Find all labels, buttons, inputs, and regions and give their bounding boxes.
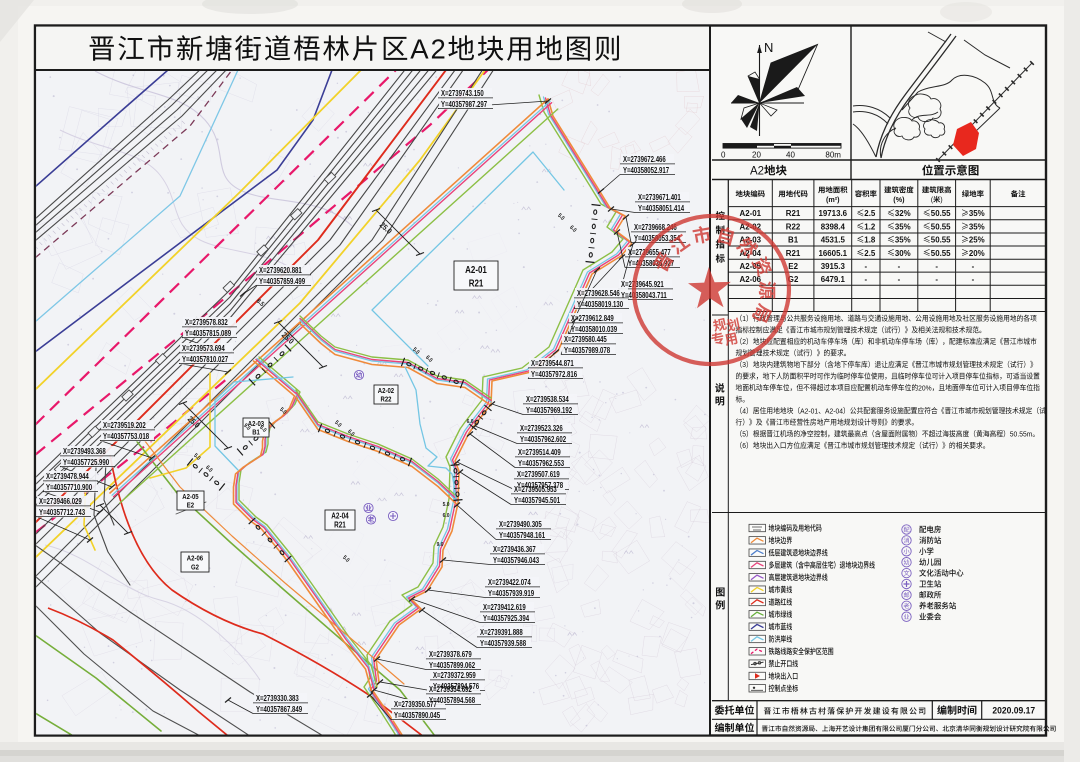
- svg-text:X=2739645.921: X=2739645.921: [621, 279, 664, 289]
- svg-text:X=2739620.881: X=2739620.881: [259, 265, 302, 275]
- svg-text:G2: G2: [191, 564, 199, 572]
- svg-text:50.55: 50.55: [931, 249, 951, 258]
- svg-text:9.0: 9.0: [437, 542, 444, 548]
- svg-text:3: 3: [742, 360, 746, 370]
- svg-text:E2: E2: [788, 262, 798, 271]
- svg-text:X=2739672.466: X=2739672.466: [623, 154, 666, 164]
- svg-text:2: 2: [742, 337, 746, 347]
- svg-text:4531.5: 4531.5: [821, 235, 846, 244]
- svg-text:Y=40357946.043: Y=40357946.043: [493, 555, 539, 565]
- svg-text:R21: R21: [334, 520, 346, 530]
- svg-text:X=2739478.944: X=2739478.944: [46, 471, 90, 481]
- svg-text:R21: R21: [786, 249, 801, 258]
- svg-text:R22: R22: [786, 222, 801, 231]
- svg-text:35%: 35%: [895, 222, 911, 231]
- svg-text:1.8: 1.8: [864, 235, 875, 244]
- svg-text:Y=40357925.394: Y=40357925.394: [483, 613, 530, 623]
- svg-text:20%: 20%: [969, 249, 985, 258]
- svg-text:-: -: [865, 275, 868, 284]
- svg-text:20: 20: [752, 151, 761, 160]
- svg-text:(m²): (m²): [826, 195, 840, 204]
- svg-text:-: -: [898, 275, 901, 284]
- svg-text:Y=40357753.018: Y=40357753.018: [103, 431, 149, 441]
- svg-text:A2-04: A2-04: [825, 406, 843, 416]
- svg-text:A2-06: A2-06: [187, 555, 204, 563]
- svg-text:35%: 35%: [969, 209, 985, 218]
- svg-text:Y=40358051.414: Y=40358051.414: [638, 203, 685, 213]
- svg-text:Y=40357962.602: Y=40357962.602: [520, 434, 566, 444]
- svg-text:X=2739612.849: X=2739612.849: [571, 313, 614, 323]
- svg-text:6479.1: 6479.1: [821, 275, 846, 284]
- svg-text:A2-01: A2-01: [465, 264, 487, 275]
- svg-text:E2: E2: [187, 502, 195, 510]
- svg-text:A2-01: A2-01: [800, 406, 818, 416]
- svg-text:Y=40357867.849: Y=40357867.849: [256, 704, 302, 714]
- svg-text:Y=40357815.089: Y=40357815.089: [185, 328, 231, 338]
- svg-text:X=2739514.409: X=2739514.409: [518, 447, 561, 457]
- svg-text:Y=40357899.062: Y=40357899.062: [429, 660, 475, 670]
- svg-text:R21: R21: [469, 278, 484, 289]
- svg-text:6: 6: [742, 441, 746, 451]
- svg-text:3915.3: 3915.3: [821, 262, 846, 271]
- svg-text:Y=40357725.990: Y=40357725.990: [63, 457, 109, 467]
- svg-text:X=2739671.401: X=2739671.401: [638, 192, 681, 202]
- svg-text:20%: 20%: [918, 383, 932, 393]
- svg-text:-: -: [935, 262, 938, 271]
- svg-text:A2: A2: [410, 34, 447, 65]
- svg-text:Y=40357962.553: Y=40357962.553: [518, 458, 564, 468]
- svg-text:Y=40357945.501: Y=40357945.501: [514, 495, 560, 505]
- svg-text:X=2739350.577: X=2739350.577: [394, 699, 437, 709]
- svg-text:2020.09.17: 2020.09.17: [992, 705, 1035, 715]
- svg-text:X=2739493.368: X=2739493.368: [63, 446, 106, 456]
- svg-text:-: -: [972, 262, 975, 271]
- svg-text:): ): [940, 195, 942, 204]
- svg-text:X=2739580.445: X=2739580.445: [564, 334, 607, 344]
- svg-text:X=2739490.305: X=2739490.305: [499, 519, 542, 529]
- svg-text:X=2739538.534: X=2739538.534: [526, 394, 570, 404]
- svg-text:50.55: 50.55: [931, 222, 951, 231]
- svg-text:X=2739507.619: X=2739507.619: [517, 469, 560, 479]
- svg-text:Y=40357710.900: Y=40357710.900: [46, 482, 92, 492]
- svg-text:B1: B1: [788, 235, 798, 244]
- svg-text:5.0: 5.0: [443, 502, 450, 508]
- svg-text:50.55: 50.55: [931, 235, 951, 244]
- svg-text:Y=40357939.588: Y=40357939.588: [480, 638, 526, 648]
- svg-text:35%: 35%: [969, 222, 985, 231]
- svg-text:X=2739412.619: X=2739412.619: [483, 602, 526, 612]
- svg-text:6.0: 6.0: [467, 419, 474, 425]
- svg-text:-: -: [972, 275, 975, 284]
- svg-text:X=2739743.150: X=2739743.150: [441, 88, 484, 98]
- svg-text:X=2739422.074: X=2739422.074: [488, 577, 532, 587]
- svg-text:A2: A2: [750, 166, 764, 178]
- svg-text:1.2: 1.2: [864, 222, 875, 231]
- svg-text:Y=40357939.919: Y=40357939.919: [488, 588, 534, 598]
- svg-text:Y=40358043.711: Y=40358043.711: [621, 290, 667, 300]
- svg-text:X=2739436.367: X=2739436.367: [493, 544, 536, 554]
- svg-text:5: 5: [742, 429, 746, 439]
- svg-text:Y=40357890.045: Y=40357890.045: [394, 710, 440, 720]
- svg-text:Y=40358010.039: Y=40358010.039: [571, 324, 617, 334]
- svg-text:X=2739354.692: X=2739354.692: [429, 684, 472, 694]
- svg-text:50.55m: 50.55m: [1010, 429, 1033, 439]
- svg-text:X=2739628.546: X=2739628.546: [577, 288, 620, 298]
- svg-text:X=2739372.959: X=2739372.959: [433, 670, 476, 680]
- svg-text:N: N: [764, 40, 773, 55]
- svg-text:A2-01: A2-01: [740, 209, 762, 218]
- svg-text:Y=40357712.743: Y=40357712.743: [39, 507, 85, 517]
- svg-text:A2-02: A2-02: [378, 387, 395, 395]
- svg-text:32%: 32%: [895, 209, 911, 218]
- svg-text:B1: B1: [252, 429, 260, 437]
- svg-text:X=2739523.326: X=2739523.326: [520, 423, 563, 433]
- svg-text:16605.1: 16605.1: [819, 249, 848, 258]
- svg-text:8398.4: 8398.4: [821, 222, 846, 231]
- svg-text:X=2739578.832: X=2739578.832: [185, 317, 228, 327]
- svg-text:Y=40357810.027: Y=40357810.027: [182, 354, 228, 364]
- svg-text:Y=40358019.130: Y=40358019.130: [577, 299, 623, 309]
- svg-text:1: 1: [742, 314, 746, 324]
- svg-text:2.5: 2.5: [864, 249, 875, 258]
- svg-text:4: 4: [742, 406, 746, 416]
- svg-text:6.0: 6.0: [443, 513, 450, 519]
- svg-text:R21: R21: [786, 209, 801, 218]
- svg-text:X=2739378.679: X=2739378.679: [429, 649, 472, 659]
- svg-text:X=2739391.888: X=2739391.888: [480, 627, 523, 637]
- svg-text:X=2739466.029: X=2739466.029: [39, 496, 82, 506]
- svg-text:X=2739573.694: X=2739573.694: [182, 343, 226, 353]
- svg-text:Y=40357972.816: Y=40357972.816: [531, 369, 577, 379]
- svg-text:-: -: [865, 262, 868, 271]
- svg-text:0: 0: [721, 151, 726, 160]
- svg-text:30%: 30%: [895, 249, 911, 258]
- svg-text:X=2739544.871: X=2739544.871: [531, 358, 574, 368]
- svg-text:Y=40357948.161: Y=40357948.161: [499, 530, 545, 540]
- svg-text:Y=40357859.499: Y=40357859.499: [259, 276, 305, 286]
- svg-text:35%: 35%: [895, 235, 911, 244]
- svg-text:A2-05: A2-05: [182, 493, 199, 501]
- svg-text:19713.6: 19713.6: [819, 209, 848, 218]
- svg-text:50.55: 50.55: [931, 209, 951, 218]
- svg-text:Y=40357989.078: Y=40357989.078: [564, 345, 610, 355]
- svg-text:X=2739330.383: X=2739330.383: [256, 693, 299, 703]
- svg-text:2.5: 2.5: [864, 209, 875, 218]
- svg-text:Y=40357987.297: Y=40357987.297: [441, 99, 487, 109]
- svg-text:Y=40358052.917: Y=40358052.917: [623, 165, 669, 175]
- svg-text:R22: R22: [381, 396, 392, 404]
- svg-text:X=2739519.202: X=2739519.202: [103, 420, 146, 430]
- svg-text:(%): (%): [893, 195, 905, 204]
- svg-text:X=2739505.953: X=2739505.953: [514, 484, 557, 494]
- svg-text:40: 40: [786, 151, 795, 160]
- svg-text:80m: 80m: [825, 151, 841, 160]
- svg-text:Y=40357969.192: Y=40357969.192: [526, 405, 572, 415]
- svg-text:-: -: [935, 275, 938, 284]
- svg-text:25%: 25%: [969, 235, 985, 244]
- svg-text:-: -: [898, 262, 901, 271]
